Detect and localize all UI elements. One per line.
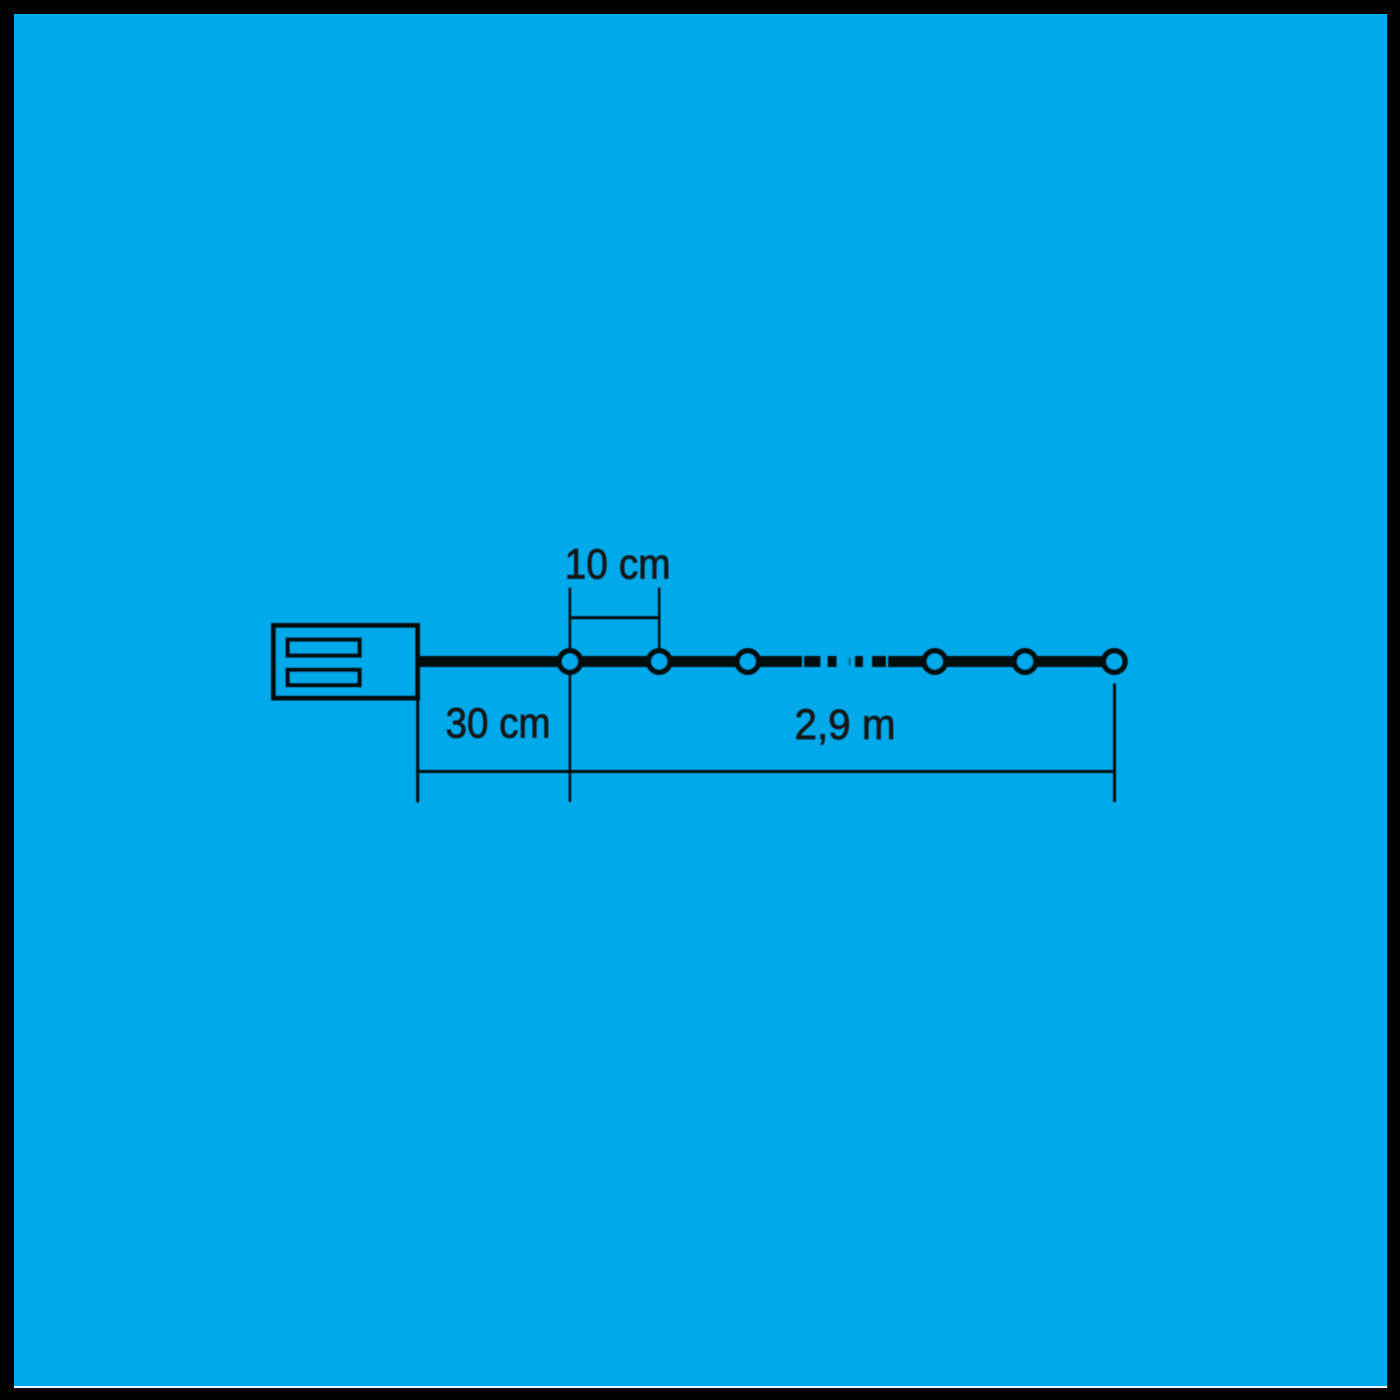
svg-text:30 cm: 30 cm (446, 700, 551, 747)
svg-text:10 cm: 10 cm (565, 541, 671, 588)
svg-text:2,9 m: 2,9 m (795, 701, 896, 748)
